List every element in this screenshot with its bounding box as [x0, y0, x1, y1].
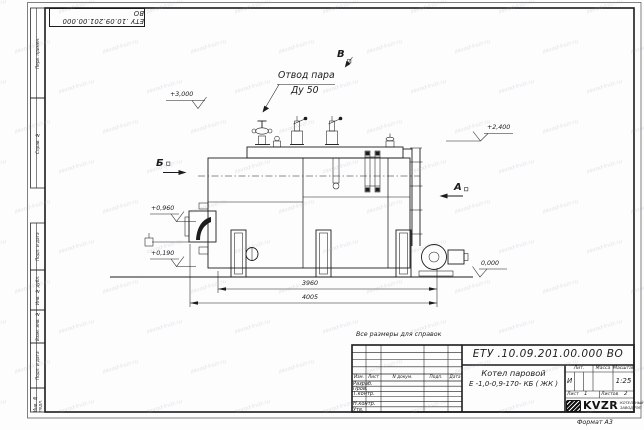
logo-emblem-icon	[566, 400, 581, 412]
manufacturer-logo: KVZR КОТЕЛЬНЫЙ ЗАВОД РЭП	[566, 399, 643, 412]
header-podp: Подп.	[424, 376, 448, 380]
view-letter-v: В	[337, 50, 345, 60]
water-level-gauges	[333, 151, 380, 192]
label-steam-outlet: Отвод пара	[278, 71, 335, 80]
level-mark-2400: +2,400	[487, 125, 510, 131]
row-t-kontr: Т.контр.	[353, 392, 375, 397]
safety-valve-1	[290, 116, 307, 145]
top-stamp: ЕТУ .10.09.201.00.000 ВО	[49, 8, 145, 27]
header-data: Дата	[448, 376, 462, 380]
side-column-perv-primen: Перв. примен.	[31, 8, 44, 98]
drawing-sheet: zavod-kvzr.ruzavod-kvzr.ruzavod-kvzr.ruz…	[0, 0, 644, 430]
header-n-dokum: N докум.	[381, 376, 424, 380]
safety-valve-2	[325, 116, 342, 145]
top-stamp-text: ЕТУ .10.09.201.00.000 ВО	[50, 10, 144, 26]
level-mark-3000: +3,000	[170, 92, 193, 98]
level-mark-0960: +0,960	[151, 206, 174, 212]
side-column-podp-data-2: Подп. и дата	[31, 343, 44, 388]
side-column-inv-podl: Инв. № подл.	[31, 388, 44, 412]
reference-note: Все размеры для справок	[356, 332, 441, 338]
label-steam-outlet-dn: Ду 50	[291, 86, 319, 95]
logo-subtitle-line2: ЗАВОД РЭП	[620, 406, 643, 410]
title-doc-number: ЕТУ .10.09.201.00.000 ВО	[462, 349, 634, 360]
lit-value: И	[565, 378, 574, 385]
title-name-line1: Котел паровой	[463, 369, 564, 377]
masshtab-header: Масштаб	[613, 367, 634, 372]
logo-subtitle-line1: КОТЕЛЬНЫЙ	[620, 401, 643, 405]
boiler-body	[208, 158, 410, 268]
blower-fan	[419, 245, 468, 277]
level-mark-0000: 0,000	[481, 261, 499, 267]
list-label: Лист	[567, 393, 579, 398]
side-column-sprav-no: Справ. №	[31, 98, 44, 188]
side-column-vzam-inv: Взам. инв. №	[31, 310, 44, 343]
massa-header: Масса	[593, 367, 613, 372]
logo-subtitle: КОТЕЛЬНЫЙ ЗАВОД РЭП	[620, 401, 643, 409]
dim-4005: 4005	[302, 295, 318, 301]
level-mark-0190: +0,190	[151, 251, 174, 257]
format-label: Формат А3	[577, 420, 613, 426]
lit-header: Лит.	[565, 367, 593, 372]
view-letter-a: А	[454, 183, 462, 193]
scale-value: 1:25	[613, 378, 634, 385]
view-letter-b: Б	[156, 159, 164, 169]
header-izm: Изм.	[352, 376, 366, 380]
steam-outlet-valve	[252, 121, 272, 145]
logo-text: KVZR	[583, 399, 618, 412]
dim-3960: 3960	[302, 281, 318, 287]
side-column-inv-dubl: Инв. № дубл.	[31, 270, 44, 310]
row-utv: Утв.	[353, 408, 364, 413]
steam-drum	[247, 147, 403, 158]
listov-value: 2	[624, 392, 628, 398]
side-column-podp-data-1: Подп. и дата	[31, 223, 44, 270]
header-list: Лист	[366, 376, 381, 380]
list-value: 1	[584, 392, 588, 398]
line-art	[0, 0, 644, 430]
title-name-line2: Е -1,0-0,9-170- КБ ( ЖК )	[463, 381, 564, 388]
listov-label: Листов	[601, 393, 618, 398]
